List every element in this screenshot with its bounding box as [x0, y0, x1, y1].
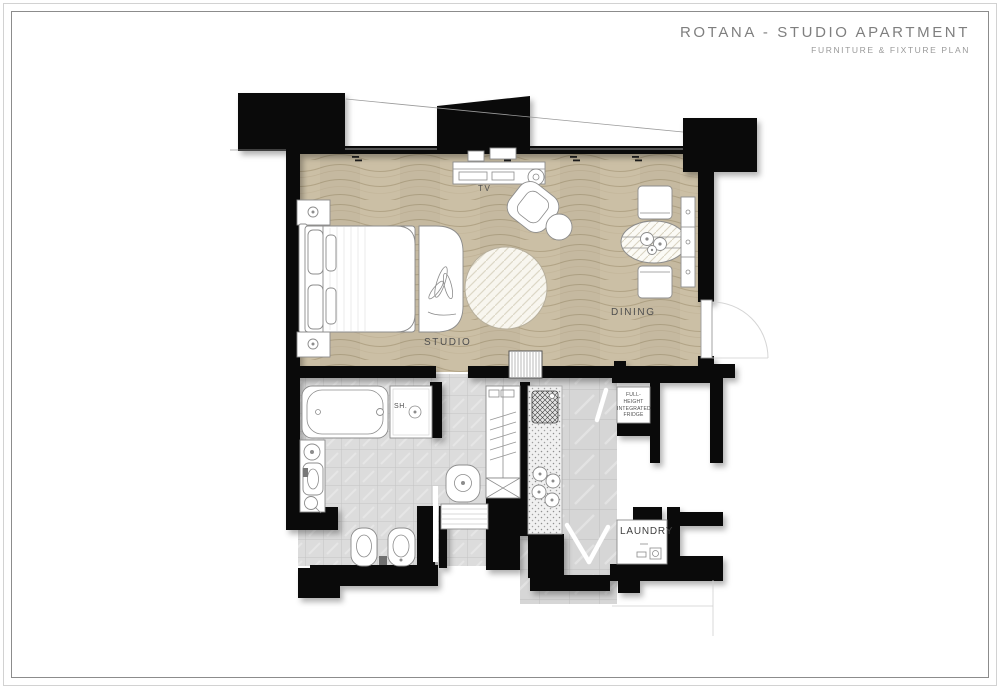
studio-room-label: STUDIO [424, 337, 471, 348]
foot-bench-plant [419, 226, 463, 332]
wall-right-upper [698, 170, 714, 302]
wall-fridge-bottom [617, 423, 660, 436]
wall-niche-top [680, 512, 723, 526]
wall-fridge-top [612, 370, 658, 383]
wall-laundry-bottom [610, 564, 723, 581]
fridge-label: FULL-HEIGHT INTEGRATED FRIDGE [617, 392, 650, 419]
king-bed [299, 224, 415, 332]
wall-column-top-right [683, 118, 757, 172]
wall-storage-top [652, 370, 723, 383]
nightstand-lamp [297, 200, 330, 225]
wall-studio-bottom-left [296, 366, 436, 378]
sliding-door [433, 486, 438, 562]
dining-room-label: DINING [611, 307, 656, 318]
wall-column-top-left [238, 93, 345, 151]
wall-fridge-notch [614, 361, 626, 371]
floor-plan-drawing [0, 0, 1000, 689]
nightstand-lamp [297, 332, 330, 357]
wall-below-wardrobe [486, 498, 520, 570]
vanity-basin [300, 440, 325, 513]
wall-wc-partition [417, 506, 435, 568]
ottoman [546, 214, 572, 240]
kitchen-sink [532, 391, 558, 423]
wardrobe [486, 386, 520, 478]
luggage-rack [486, 478, 520, 498]
dining-chair [638, 266, 672, 298]
tv-label: TV [478, 184, 491, 193]
shower-drain [390, 386, 432, 438]
entry-door [701, 300, 768, 358]
drawing-sheet: ROTANA - STUDIO APARTMENT FURNITURE & FI… [0, 0, 1000, 689]
wall-laundry-step [618, 581, 640, 593]
bathtub [302, 386, 388, 438]
wall-bath-bottom-step [298, 568, 340, 598]
entry-door-leaf [701, 300, 712, 358]
wall-storage-right [710, 383, 723, 463]
pocket-door-cabinet [509, 351, 542, 378]
bidet [351, 528, 377, 566]
wall-laundry-top [633, 507, 662, 520]
laundry-room-label: LAUNDRY [620, 526, 673, 537]
wall-below-hall [530, 575, 610, 591]
wall-column-top-middle [437, 96, 530, 152]
sideboard [681, 197, 695, 287]
dining-chair [638, 186, 672, 219]
shower-label: SH. [394, 403, 407, 410]
wall-below-counter [528, 534, 564, 578]
round-rug [465, 247, 547, 329]
